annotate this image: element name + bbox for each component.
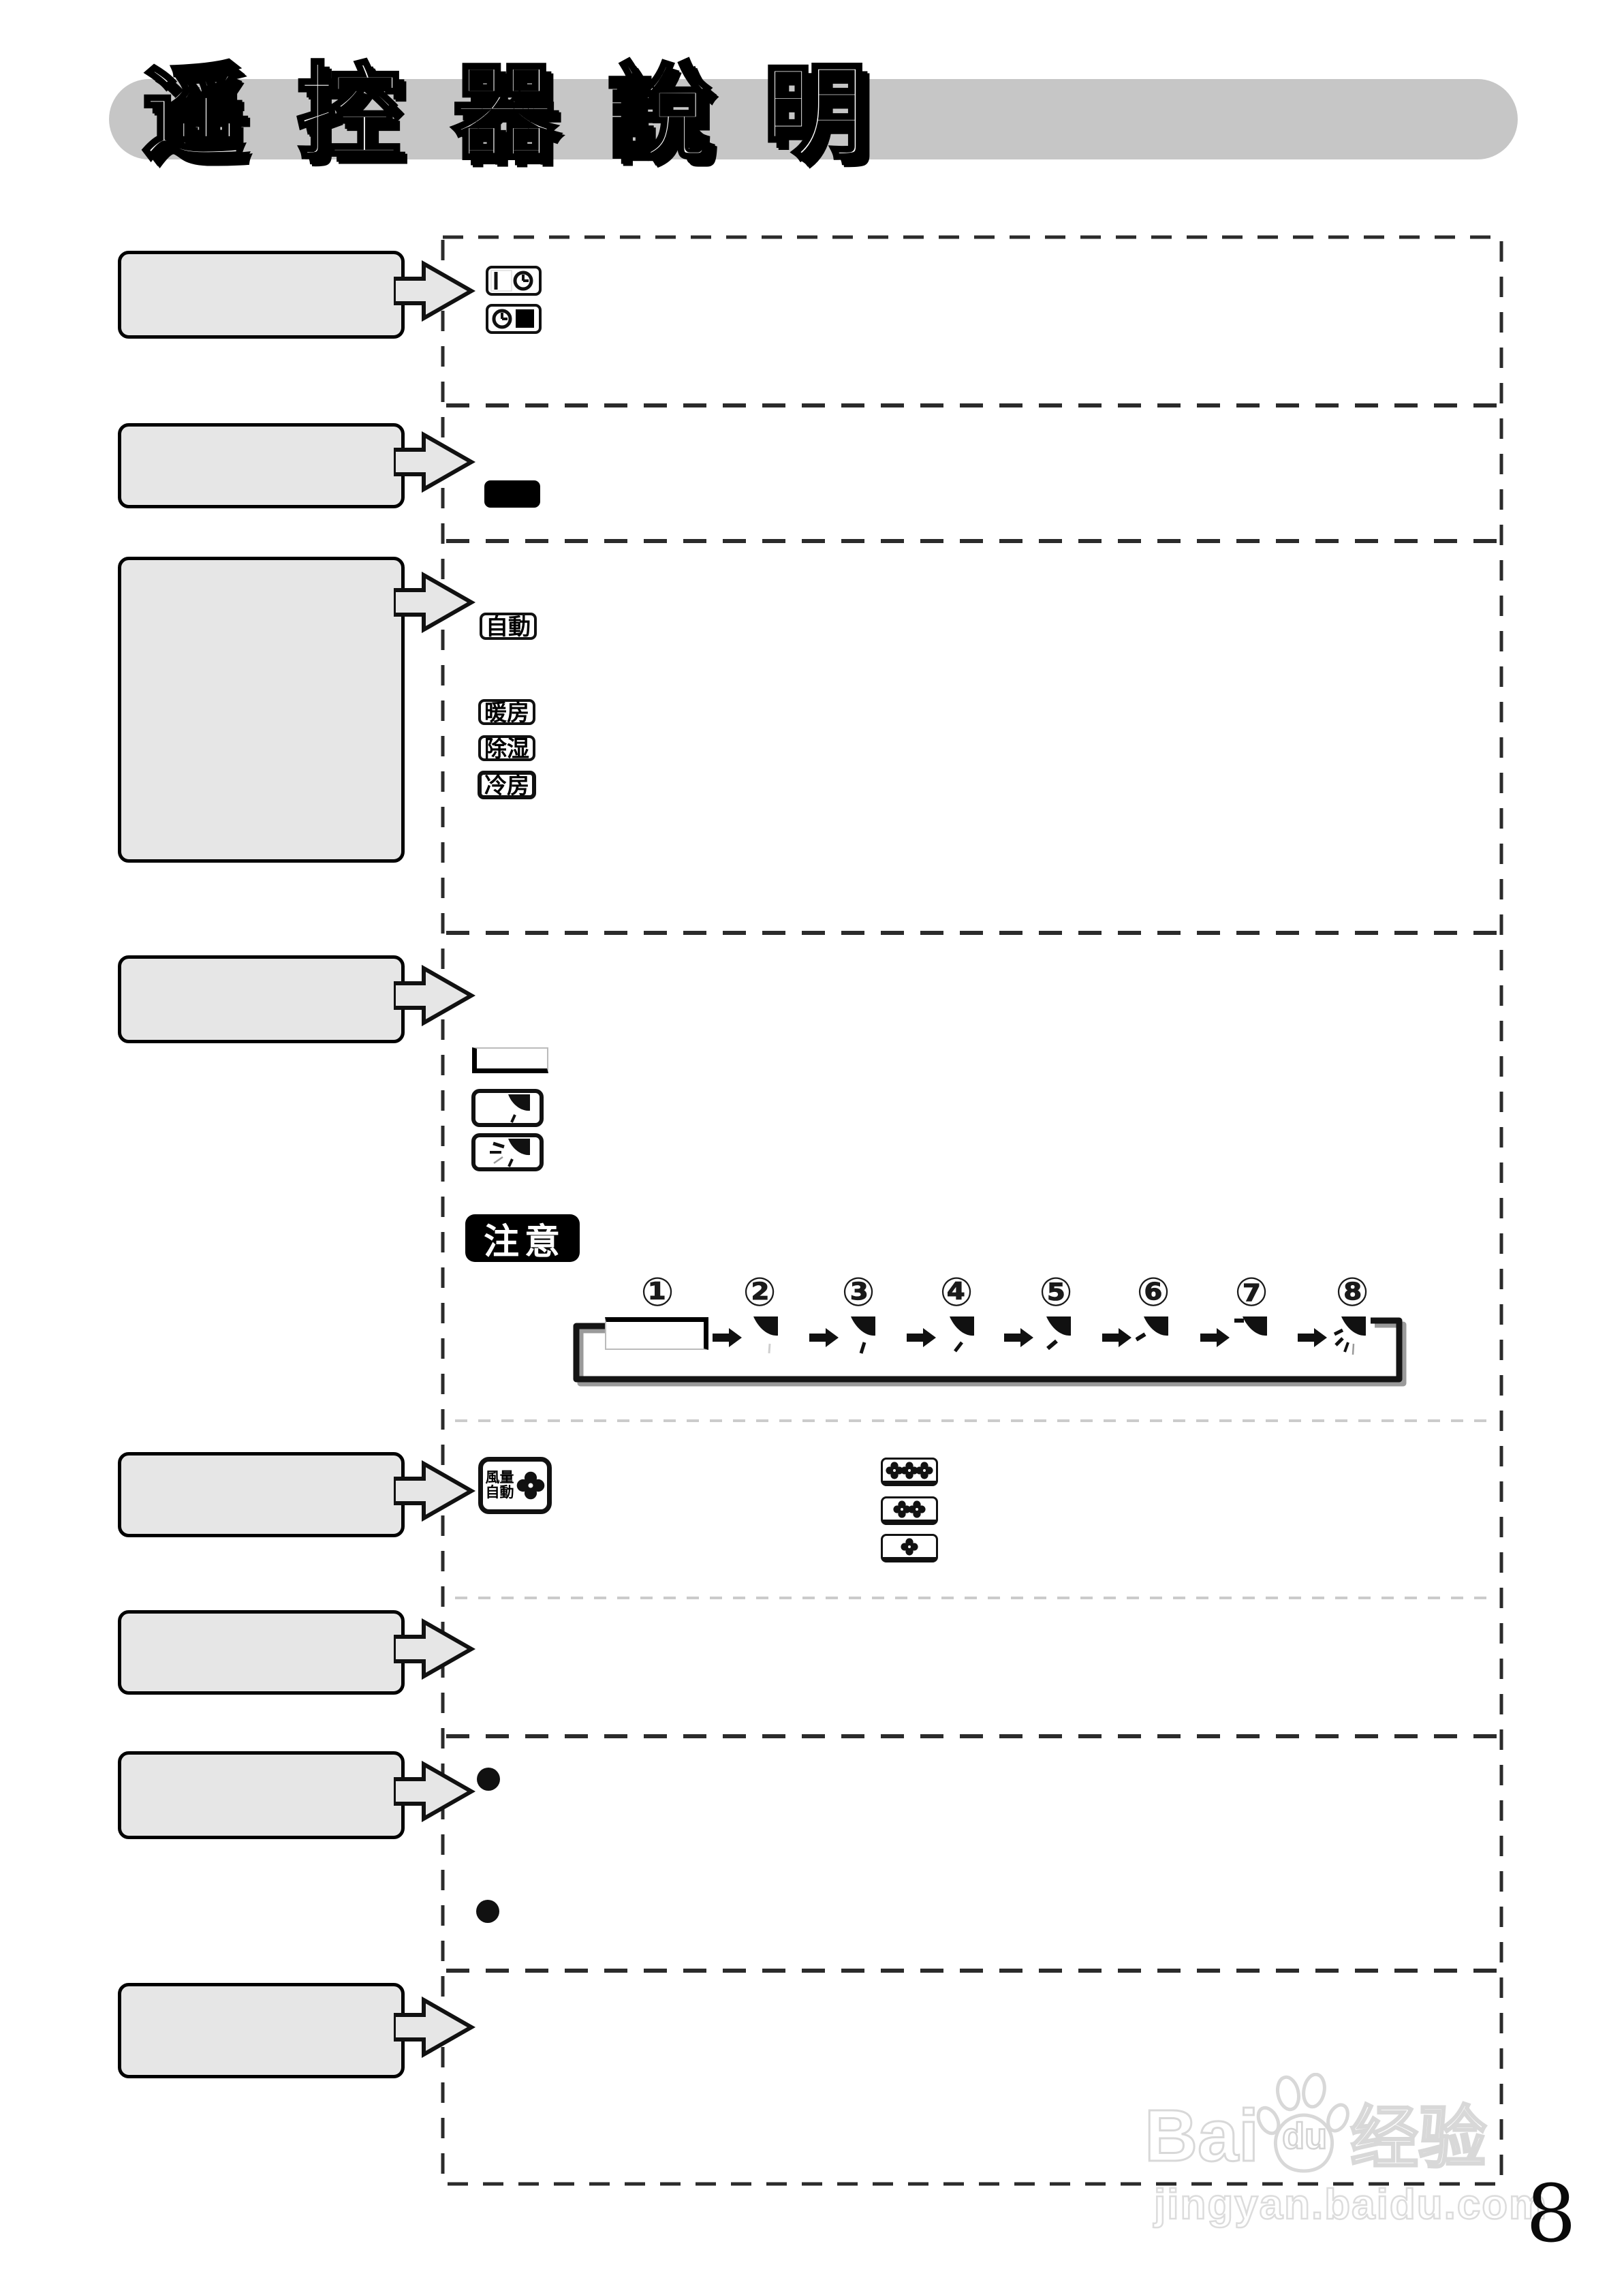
bullet-dot [477,1768,500,1791]
callout-arrow-icon [394,963,477,1028]
dashed-frame [443,237,1501,2184]
vane-button [471,1089,544,1127]
mode-label: 暖房 [484,701,529,724]
notice-label: 注意 [484,1213,565,1264]
mode-button-heat: 暖房 [478,699,535,725]
watermark-brand-prefix: Bai [1144,2099,1259,2172]
watermark-paw-text: du [1282,2115,1327,2157]
callout-box-notes [118,1751,405,1839]
step-number: ⑦ [1231,1269,1272,1315]
watermark: Bai du 经验 jingyan.baidu.com [1144,2073,1548,2229]
louver-step-icon [1038,1314,1076,1371]
callout-arrow-icon [394,570,477,635]
fan-speed-button: 風量 自動 [478,1457,552,1514]
louver-swing-icon [1333,1314,1371,1371]
right-arrow-icon [713,1327,743,1348]
fan-icon [916,1462,933,1479]
mode-button-cool: 冷房 [478,771,536,799]
step-number: ⑧ [1332,1269,1373,1315]
mode-button-auto: 自動 [480,613,537,640]
right-arrow-icon [1298,1327,1328,1348]
louver-flap-icon [477,1093,538,1123]
timer-off-button [486,304,542,334]
swing-button [471,1133,544,1171]
louver-step-icon [843,1314,881,1371]
right-arrow-icon [907,1327,937,1348]
mode-button-dry: 除湿 [478,735,535,761]
frame-and-separators [0,0,1624,2295]
fan-icon [908,1500,926,1518]
callout-box-power [118,423,405,508]
callout-box-mode [118,557,405,863]
louver-step-icon [1234,1314,1272,1371]
right-arrow-icon [1200,1327,1230,1348]
callout-arrow-icon [394,429,477,495]
fan-indicator-low [881,1534,938,1562]
callout-box-fan [118,1452,405,1537]
notice-badge: 注意 [465,1214,580,1262]
callout-box-last [118,1983,405,2078]
louver-step-icon [1136,1314,1174,1371]
fan-indicator-high [881,1458,938,1486]
step-number: ① [637,1269,678,1315]
fan-button-label-line2: 自動 [486,1485,514,1500]
page-number: 8 [1526,2168,1576,2260]
clock-square-icon [490,307,537,330]
vane-display-rect [472,1047,548,1073]
louver-step-icon [745,1314,783,1371]
watermark-brand-suffix: 经验 [1350,2104,1486,2172]
bar-clock-icon [490,269,537,292]
power-button [484,480,540,508]
callout-arrow-icon [394,1759,477,1824]
page-title: 遥控器說明 [142,29,918,179]
callout-arrow-icon [394,1616,477,1682]
callout-arrow-icon [394,1458,477,1524]
callout-arrow-icon [394,1994,477,2060]
fan-icon [901,1538,918,1556]
right-arrow-icon [1102,1327,1132,1348]
right-arrow-icon [1004,1327,1034,1348]
timer-on-button [486,266,542,296]
step-number: ⑤ [1035,1269,1076,1315]
vane-closed-rect [605,1317,708,1350]
step-number: ④ [936,1269,977,1315]
step-number: ⑥ [1133,1269,1174,1315]
mode-label: 除湿 [484,737,529,760]
callout-box-vane [118,955,405,1043]
right-arrow-icon [809,1327,839,1348]
callout-box-timer [118,251,405,339]
mode-label: 冷房 [484,774,529,797]
step-number: ② [739,1269,780,1315]
mode-label: 自動 [486,615,531,638]
watermark-site-url: jingyan.baidu.com [1154,2181,1548,2229]
fan-button-label-line1: 風量 [486,1470,514,1485]
step-number: ③ [838,1269,879,1315]
bullet-dot [476,1900,499,1923]
paw-icon: du [1256,2073,1352,2175]
louver-step-icon [941,1314,980,1371]
fan-icon [516,1471,545,1500]
fan-indicator-medium [881,1496,938,1525]
callout-box-extra [118,1610,405,1695]
callout-arrow-icon [394,258,477,324]
louver-flap-swing-icon [477,1137,538,1167]
